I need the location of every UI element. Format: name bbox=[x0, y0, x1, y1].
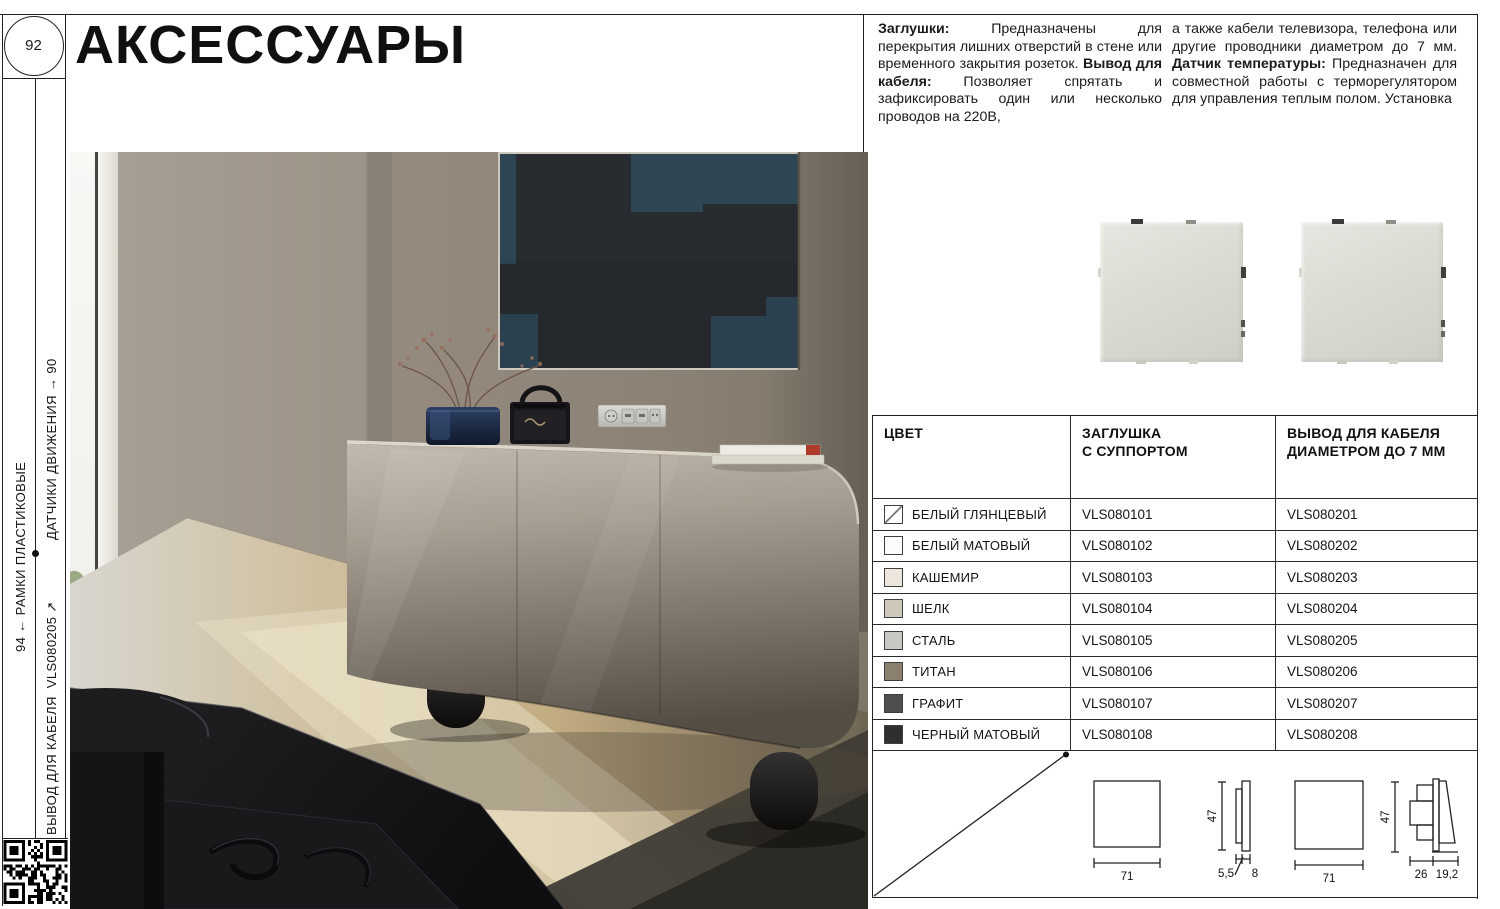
color-name: КАШЕМИР bbox=[912, 570, 979, 585]
color-name: БЕЛЫЙ ГЛЯНЦЕВЫЙ bbox=[912, 507, 1047, 522]
plate-tab bbox=[1241, 331, 1245, 337]
table-row-color-cell: КАШЕМИР bbox=[873, 561, 1070, 593]
page-title: АКСЕССУАРЫ bbox=[75, 16, 466, 75]
sidebar-section-dot bbox=[32, 550, 39, 557]
article-cell: VLS080206 bbox=[1275, 656, 1477, 688]
color-name: ТИТАН bbox=[912, 664, 956, 679]
plate-tab bbox=[1299, 268, 1302, 277]
plate-tab bbox=[1136, 360, 1146, 364]
article-cell: VLS080204 bbox=[1275, 593, 1477, 625]
plate-tab bbox=[1441, 331, 1445, 337]
color-swatch bbox=[884, 631, 903, 650]
article-cell: VLS080106 bbox=[1070, 656, 1275, 688]
color-swatch bbox=[884, 568, 903, 587]
plate-tab bbox=[1241, 320, 1245, 327]
table-row-color-cell: ГРАФИТ bbox=[873, 687, 1070, 719]
table-row-color-cell: ЧЕРНЫЙ МАТОВЫЙ bbox=[873, 719, 1070, 751]
table-row-color-cell: СТАЛЬ bbox=[873, 624, 1070, 656]
plate-tab bbox=[1337, 360, 1347, 364]
catalog-page: 92 АКСЕССУАРЫ ДАТЧИКИ ДВИЖЕНИЯ → 90 ВЫВО… bbox=[0, 0, 1500, 909]
sidebar-nav-parent-section: 94 ← РАМКИ ПЛАСТИКОВЫЕ bbox=[10, 417, 32, 652]
article-cell: VLS080202 bbox=[1275, 530, 1477, 562]
desc-text: а также кабели телевизора, телефона или … bbox=[1172, 21, 1457, 55]
article-cell: VLS080108 bbox=[1070, 719, 1275, 751]
page-number-badge: 92 bbox=[4, 16, 64, 76]
diagonal-cell bbox=[873, 750, 1070, 897]
room-photo bbox=[70, 152, 868, 909]
plate-tab bbox=[1241, 267, 1246, 278]
color-name: ШЕЛК bbox=[912, 601, 950, 616]
svg-text:71: 71 bbox=[1121, 871, 1134, 883]
plug-dimensions-cell: 71 47 5,5 8 bbox=[1070, 750, 1275, 897]
svg-text:26: 26 bbox=[1415, 869, 1428, 881]
cable-outlet-product-photo bbox=[1301, 222, 1443, 362]
qr-code bbox=[3, 840, 68, 904]
color-swatch bbox=[884, 536, 903, 555]
svg-text:19,2: 19,2 bbox=[1436, 869, 1458, 881]
qr-top-rule bbox=[2, 838, 68, 839]
diagonal-line-drawing bbox=[873, 751, 1070, 897]
plate-tab bbox=[1441, 267, 1446, 278]
plate-tab bbox=[1332, 219, 1344, 224]
article-cell: VLS080101 bbox=[1070, 498, 1275, 530]
article-cell: VLS080205 bbox=[1275, 624, 1477, 656]
plate-tab bbox=[1189, 360, 1198, 364]
article-cell: VLS080201 bbox=[1275, 498, 1477, 530]
table-row-color-cell: БЕЛЫЙ МАТОВЫЙ bbox=[873, 530, 1070, 562]
description-column-2: а также кабели телевизора, телефона или … bbox=[1172, 21, 1457, 109]
article-cell: VLS080105 bbox=[1070, 624, 1275, 656]
cable-outlet-dimensions-cell: 71 47 26 19,2 bbox=[1275, 750, 1477, 897]
color-swatch bbox=[884, 599, 903, 618]
color-swatch bbox=[884, 694, 903, 713]
article-cell: VLS080207 bbox=[1275, 687, 1477, 719]
page-number: 92 bbox=[25, 37, 42, 54]
sidebar-nav-prev-section: ДАТЧИКИ ДВИЖЕНИЯ → 90 bbox=[41, 215, 63, 540]
plate-tab bbox=[1186, 220, 1196, 224]
sidebar-right-border bbox=[65, 14, 66, 839]
article-cell: VLS080203 bbox=[1275, 561, 1477, 593]
color-swatch bbox=[884, 725, 903, 744]
table-row-color-cell: БЕЛЫЙ ГЛЯНЦЕВЫЙ bbox=[873, 498, 1070, 530]
cable-outlet-dimensions-drawing: 71 47 26 19,2 bbox=[1275, 751, 1477, 897]
article-cell: VLS080103 bbox=[1070, 561, 1275, 593]
col-header-cable-outlet: ВЫВОД ДЛЯ КАБЕЛЯ ДИАМЕТРОМ ДО 7 ММ bbox=[1275, 416, 1477, 498]
article-cell: VLS080102 bbox=[1070, 530, 1275, 562]
col-header-color: ЦВЕТ bbox=[873, 416, 1070, 498]
sidebar-nav-current-section: ВЫВОД ДЛЯ КАБЕЛЯ VLS080205 ↗ bbox=[41, 563, 63, 835]
article-cell: VLS080107 bbox=[1070, 687, 1275, 719]
sidebar-column-divider bbox=[35, 79, 36, 839]
plate-tab bbox=[1098, 268, 1101, 277]
abstract-painting bbox=[498, 152, 800, 370]
svg-text:8: 8 bbox=[1252, 868, 1258, 880]
color-swatch bbox=[884, 662, 903, 681]
desc-term-plugs: Заглушки: bbox=[878, 21, 949, 37]
plate-tab bbox=[1131, 219, 1143, 224]
description-left-rule bbox=[863, 14, 864, 153]
plug-product-photo bbox=[1100, 222, 1243, 362]
color-name: ЧЕРНЫЙ МАТОВЫЙ bbox=[912, 727, 1040, 742]
color-name: БЕЛЫЙ МАТОВЫЙ bbox=[912, 538, 1030, 553]
svg-text:47: 47 bbox=[1207, 810, 1219, 823]
table-row-color-cell: ТИТАН bbox=[873, 656, 1070, 688]
plate-tab bbox=[1389, 360, 1398, 364]
svg-text:47: 47 bbox=[1380, 811, 1392, 824]
color-name: ГРАФИТ bbox=[912, 696, 963, 711]
color-swatch bbox=[884, 505, 903, 524]
table-row-color-cell: ШЕЛК bbox=[873, 593, 1070, 625]
desc-term-temp-sensor: Датчик температуры: bbox=[1172, 56, 1326, 72]
circle-box-bottom-rule bbox=[2, 78, 66, 79]
svg-text:71: 71 bbox=[1323, 873, 1336, 885]
svg-text:5,5: 5,5 bbox=[1218, 868, 1234, 880]
plate-tab bbox=[1441, 320, 1445, 327]
product-table: ЦВЕТ ЗАГЛУШКА С СУППОРТОМ ВЫВОД ДЛЯ КАБЕ… bbox=[872, 415, 1478, 898]
color-name: СТАЛЬ bbox=[912, 633, 956, 648]
plate-tab bbox=[1386, 220, 1396, 224]
wall-socket-panel bbox=[598, 405, 666, 427]
article-cell: VLS080208 bbox=[1275, 719, 1477, 751]
glass-vase bbox=[426, 407, 500, 445]
article-cell: VLS080104 bbox=[1070, 593, 1275, 625]
sidebar-left-border bbox=[2, 14, 3, 906]
books bbox=[712, 445, 828, 472]
col-header-plug: ЗАГЛУШКА С СУППОРТОМ bbox=[1070, 416, 1275, 498]
description-column-1: Заглушки: Предназначены для перекрытия л… bbox=[878, 21, 1162, 126]
plug-dimensions-drawing: 71 47 5,5 8 bbox=[1070, 751, 1275, 897]
